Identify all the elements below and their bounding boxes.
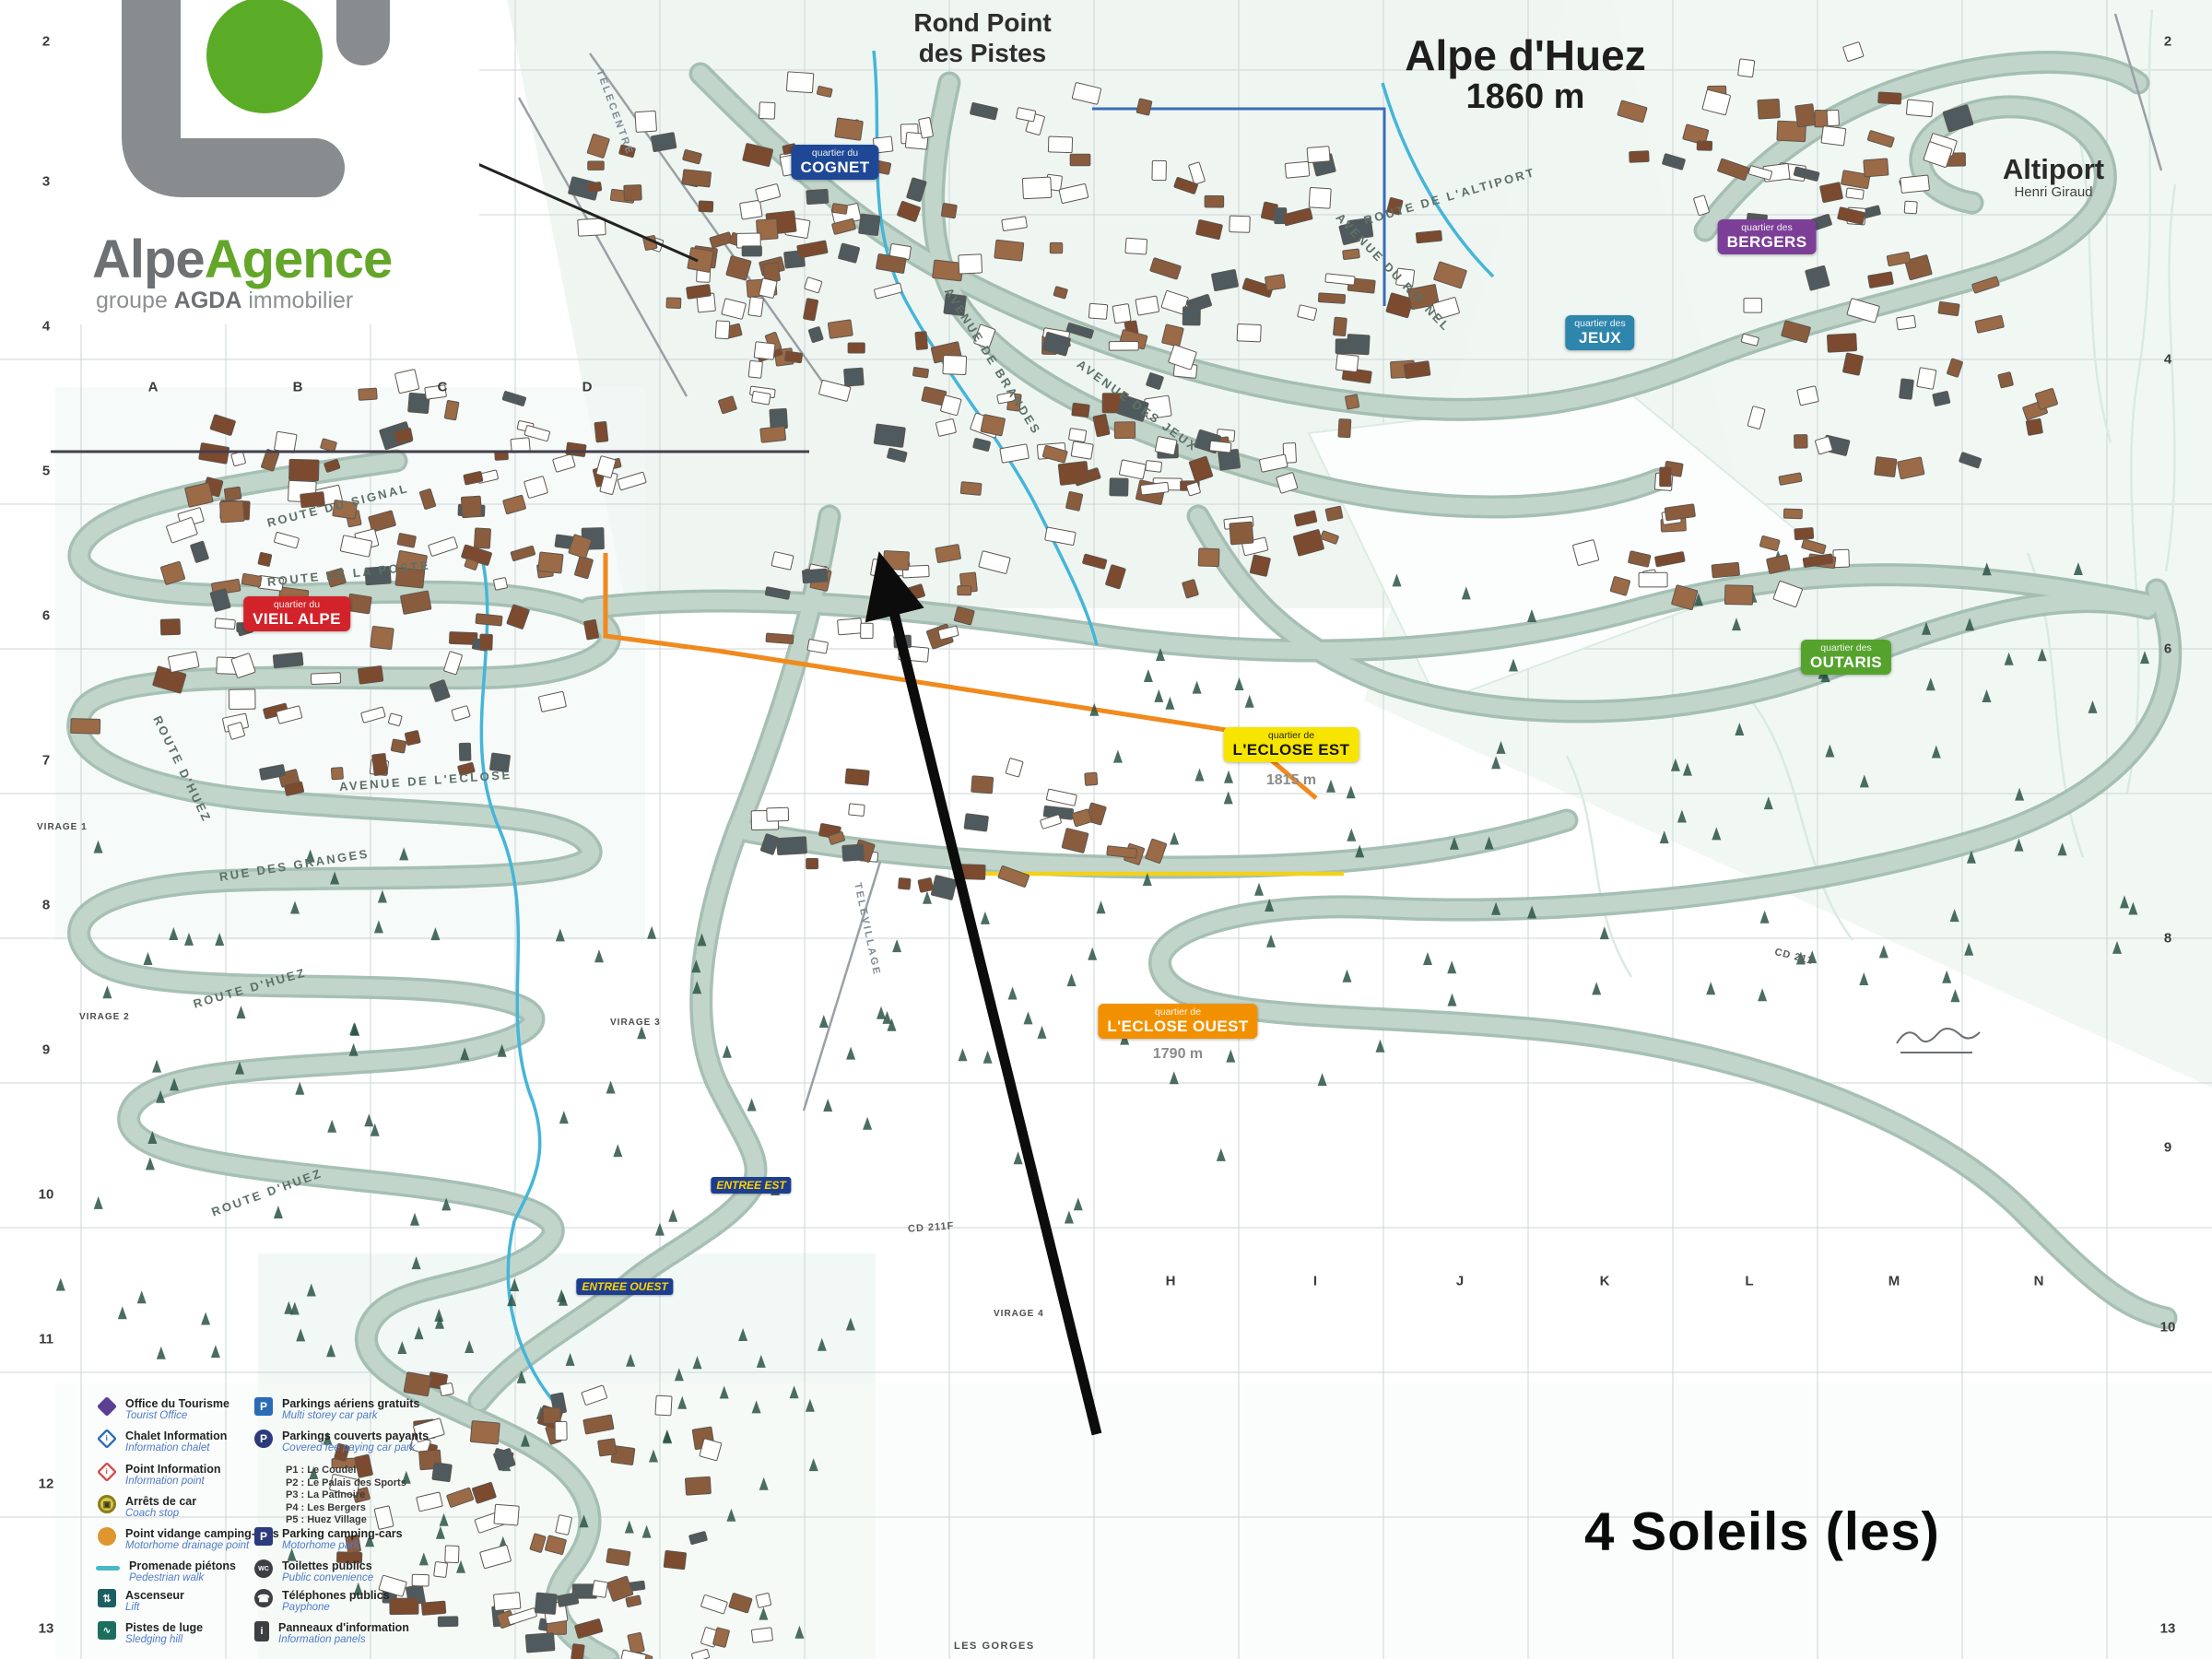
virage-4-label: VIRAGE 4 — [994, 1309, 1044, 1319]
grid-letter-j: J — [1456, 1274, 1464, 1289]
eclose-ouest-altitude: 1790 m — [1153, 1046, 1203, 1063]
open-parking-icon: P — [254, 1397, 273, 1416]
legend-en: Information point — [125, 1476, 220, 1488]
virage-3-label: VIRAGE 3 — [610, 1018, 661, 1028]
legend-en: Pedestrian walk — [129, 1572, 236, 1584]
quartier-badge-jeux: quartier des JEUX — [1565, 315, 1634, 350]
grid-number-right: 6 — [2164, 641, 2171, 657]
brand-subtitle-suffix: immobilier — [241, 288, 353, 313]
quartier-badge-vieil-alpe: quartier du VIEIL ALPE — [243, 596, 350, 631]
altiport-subname: Henri Giraud — [2003, 184, 2104, 200]
quartier-prefix: quartier de — [1107, 1006, 1248, 1018]
legend-en: Payphone — [282, 1602, 390, 1614]
legend-row: i Chalet InformationInformation chalet — [98, 1430, 227, 1454]
rond-point-line2: des Pistes — [913, 38, 1051, 68]
legend-row: P Parking camping-carsMotorhome park — [254, 1527, 403, 1552]
grid-number-left: 7 — [42, 753, 50, 769]
legend-en: Sledging hill — [125, 1634, 203, 1646]
grid-number-left: 3 — [42, 174, 50, 190]
quartier-prefix: quartier des — [1727, 222, 1807, 233]
grid-number-right: 8 — [2164, 931, 2171, 947]
tourist-office-icon — [97, 1396, 117, 1417]
quartier-prefix: quartier du — [253, 599, 341, 610]
legend-en: Lift — [125, 1602, 184, 1614]
legend-fr: Téléphones publics — [282, 1589, 390, 1602]
legend-fr: Parking camping-cars — [282, 1527, 403, 1540]
grid-letter-h: H — [1166, 1274, 1176, 1289]
legend-fr: Promenade piétons — [129, 1559, 236, 1572]
altiport-name: Altiport — [2003, 155, 2104, 184]
quartier-badge-bergers: quartier des BERGERS — [1718, 219, 1817, 254]
grid-letter-c: C — [438, 380, 448, 395]
quartier-name: BERGERS — [1727, 233, 1807, 251]
legend-row: i Point InformationInformation point — [98, 1463, 220, 1488]
grid-number-left: 5 — [42, 464, 50, 479]
legend-fr: Arrêts de car — [125, 1495, 196, 1508]
grid-number-left: 6 — [42, 608, 50, 624]
quartier-badge-cognet: quartier du COGNET — [791, 145, 878, 180]
entree-est-badge: ENTREE EST — [711, 1177, 791, 1194]
property-name-label: 4 Soleils (les) — [1584, 1501, 1940, 1563]
grid-number-left: 2 — [42, 34, 50, 50]
brand-subtitle-group: AGDA — [174, 288, 242, 313]
legend-fr: Point Information — [125, 1463, 220, 1476]
grid-letter-l: L — [1745, 1274, 1753, 1289]
legend-row: ⇅ AscenseurLift — [98, 1589, 184, 1614]
legend-en: Motorhome park — [282, 1540, 403, 1552]
legend-en: Covered fee paying car park — [282, 1442, 429, 1454]
grid-number-left: 9 — [42, 1042, 50, 1058]
motorhome-parking-icon: P — [254, 1527, 273, 1546]
legend-fr: Office du Tourisme — [125, 1397, 229, 1410]
grid-letter-m: M — [1888, 1274, 1900, 1289]
quartier-prefix: quartier des — [1810, 642, 1882, 653]
grid-number-left: 11 — [39, 1332, 53, 1347]
grid-number-right: 10 — [2160, 1320, 2176, 1335]
pedestrian-walk-icon — [96, 1566, 120, 1571]
grid-letter-b: B — [293, 380, 303, 395]
parking-item: P3 : La Patinoire — [286, 1489, 406, 1502]
les-gorges-label: LES GORGES — [954, 1641, 1035, 1652]
virage-1-label: VIRAGE 1 — [37, 822, 88, 832]
legend-fr: Panneaux d'information — [278, 1621, 409, 1634]
illustrator-signature — [1897, 1029, 1980, 1053]
altiport-label: Altiport Henri Giraud — [2003, 155, 2104, 200]
toilets-icon: WC — [254, 1559, 273, 1578]
resort-name: Alpe d'Huez — [1405, 33, 1645, 77]
eclose-est-altitude: 1815 m — [1266, 772, 1316, 789]
legend-en: Public convenience — [282, 1572, 373, 1584]
brand-agence: Agence — [205, 229, 393, 289]
quartier-badge-outaris: quartier des OUTARIS — [1801, 640, 1891, 675]
quartier-name: JEUX — [1574, 329, 1625, 347]
rond-point-des-pistes-label: Rond Point des Pistes — [913, 7, 1051, 68]
parking-item: P2 : Le Palais des Sports — [286, 1477, 406, 1490]
quartier-name: VIEIL ALPE — [253, 610, 341, 628]
entree-ouest-badge: ENTREE OUEST — [576, 1278, 673, 1295]
legend-row: P Parkings couverts payantsCovered fee p… — [254, 1430, 429, 1454]
quartier-name: COGNET — [800, 159, 869, 176]
quartier-prefix: quartier de — [1233, 730, 1350, 741]
grid-number-right: 2 — [2164, 34, 2171, 50]
legend-row: WC Toilettes publicsPublic convenience — [254, 1559, 373, 1584]
grid-letter-k: K — [1600, 1274, 1610, 1289]
grid-letter-i: I — [1313, 1274, 1317, 1289]
legend-row: Promenade piétonsPedestrian walk — [96, 1559, 236, 1584]
legend-row: ▣ Arrêts de carCoach stop — [98, 1495, 196, 1520]
brand-subtitle: groupe AGDA immobilier — [96, 288, 353, 314]
alpe-agence-logo-text: AlpeAgence — [92, 229, 392, 290]
lift-icon: ⇅ — [98, 1589, 116, 1607]
legend-en: Tourist Office — [125, 1410, 229, 1422]
coach-stop-icon: ▣ — [98, 1495, 116, 1513]
quartier-name: L'ECLOSE EST — [1233, 741, 1350, 759]
grid-letter-a: A — [148, 380, 159, 395]
covered-parking-icon: P — [254, 1430, 273, 1448]
legend-fr: Parkings aériens gratuits — [282, 1397, 419, 1410]
parking-item: P1 : Le Coudel — [286, 1465, 406, 1477]
quartier-name: OUTARIS — [1810, 653, 1882, 671]
sledging-icon: ∿ — [98, 1621, 116, 1640]
legend-fr: Toilettes publics — [282, 1559, 373, 1572]
legend-en: Information chalet — [125, 1442, 227, 1454]
rond-point-line1: Rond Point — [913, 7, 1051, 38]
grid-letter-d: D — [582, 380, 593, 395]
parking-item: P4 : Les Bergers — [286, 1502, 406, 1515]
grid-number-left: 4 — [42, 319, 50, 335]
parking-item: P5 : Huez Village — [286, 1514, 406, 1527]
legend-fr: Chalet Information — [125, 1430, 227, 1442]
grid-number-right: 4 — [2164, 352, 2171, 368]
payphone-icon: ☎ — [254, 1589, 273, 1607]
quartier-prefix: quartier des — [1574, 318, 1625, 329]
virage-2-label: VIRAGE 2 — [79, 1012, 130, 1022]
legend-row: P Parkings aériens gratuitsMulti storey … — [254, 1397, 419, 1422]
grid-number-right: 9 — [2164, 1140, 2171, 1156]
grid-number-left: 10 — [39, 1187, 54, 1203]
legend-en: Information panels — [278, 1634, 409, 1646]
point-information-icon: i — [97, 1462, 117, 1482]
information-panels-icon: i — [254, 1621, 269, 1641]
grid-letter-n: N — [2034, 1274, 2044, 1289]
legend-row: Office du TourismeTourist Office — [98, 1397, 229, 1422]
quartier-name: L'ECLOSE OUEST — [1107, 1018, 1248, 1035]
legend-fr: Parkings couverts payants — [282, 1430, 429, 1442]
legend-row: i Panneaux d'informationInformation pane… — [254, 1621, 409, 1646]
quartier-prefix: quartier du — [800, 147, 869, 159]
resort-title: Alpe d'Huez 1860 m — [1405, 33, 1645, 116]
grid-number-left: 13 — [39, 1621, 54, 1637]
legend-row: Point vidange camping-carsMotorhome drai… — [98, 1527, 279, 1552]
legend-row: ☎ Téléphones publicsPayphone — [254, 1589, 390, 1614]
legend-fr: Pistes de luge — [125, 1621, 203, 1634]
legend-en: Coach stop — [125, 1508, 196, 1520]
brand-alpe: Alpe — [92, 229, 205, 289]
resort-altitude: 1860 m — [1405, 77, 1645, 116]
brand-subtitle-prefix: groupe — [96, 288, 174, 313]
legend-en: Multi storey car park — [282, 1410, 419, 1422]
quartier-badge-eclose-est: quartier de L'ECLOSE EST — [1224, 727, 1359, 762]
chalet-information-icon: i — [97, 1429, 117, 1449]
grid-number-left: 8 — [42, 898, 50, 913]
resort-map-page: AlpeAgence groupe AGDA immobilier Rond P… — [0, 0, 2212, 1659]
motorhome-drainage-icon — [98, 1527, 116, 1546]
quartier-badge-eclose-ouest: quartier de L'ECLOSE OUEST — [1098, 1004, 1257, 1039]
parking-list: P1 : Le Coudel P2 : Le Palais des Sports… — [286, 1465, 406, 1527]
legend-row: ∿ Pistes de lugeSledging hill — [98, 1621, 203, 1646]
grid-number-left: 12 — [39, 1477, 54, 1492]
grid-number-right: 13 — [2160, 1621, 2176, 1637]
legend-fr: Ascenseur — [125, 1589, 184, 1602]
